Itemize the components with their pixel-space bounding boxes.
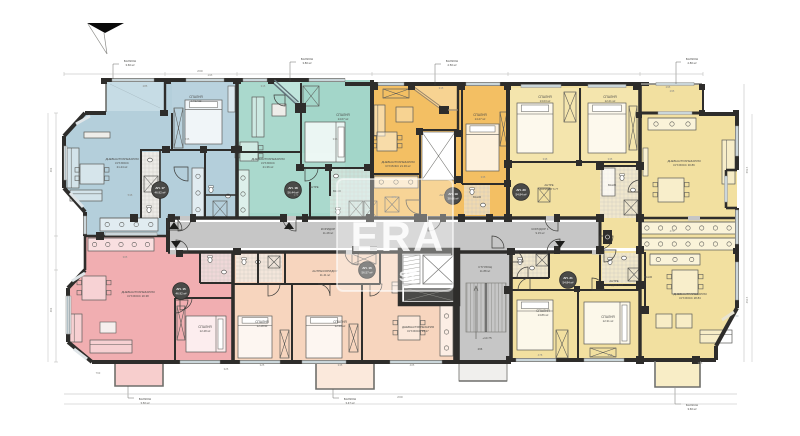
svg-text:54.84 м²: 54.84 м² [516, 193, 527, 197]
svg-text:295: 295 [208, 73, 213, 77]
svg-text:+10.75: +10.75 [482, 336, 492, 340]
svg-text:338: 338 [543, 157, 548, 161]
svg-text:14.27 м²: 14.27 м² [475, 117, 486, 121]
svg-text:2.50 м²: 2.50 м² [447, 63, 456, 67]
svg-text:295: 295 [670, 89, 675, 93]
svg-text:653.5: 653.5 [745, 166, 749, 173]
svg-text:БАНЯ: БАНЯ [644, 275, 652, 279]
svg-text:21.44 м²: 21.44 м² [117, 165, 128, 169]
svg-text:335: 335 [333, 137, 338, 141]
svg-text:ERA: ERA [351, 213, 446, 260]
svg-text:46.92 м²: 46.92 м² [176, 292, 187, 296]
svg-text:305: 305 [123, 255, 128, 259]
svg-text:АНТРЕ: АНТРЕ [609, 279, 618, 283]
svg-text:470: 470 [670, 229, 675, 233]
svg-text:АП. 17: АП. 17 [155, 186, 165, 190]
svg-text:385: 385 [698, 361, 703, 365]
svg-text:325: 325 [260, 363, 265, 367]
svg-text:12.48 м²: 12.48 м² [200, 329, 211, 333]
svg-text:КУХ.БОКС 20.38: КУХ.БОКС 20.38 [127, 294, 149, 298]
svg-text:2690: 2690 [397, 395, 403, 399]
svg-text:335: 335 [185, 137, 190, 141]
svg-text:13.03 м²: 13.03 м² [540, 99, 551, 103]
svg-text:17.92 м²: 17.92 м² [191, 99, 202, 103]
svg-text:3.60 м²: 3.60 м² [687, 407, 696, 411]
svg-text:325: 325 [224, 367, 229, 371]
svg-text:2.80 м²: 2.80 м² [687, 61, 696, 65]
svg-text:КУХ.БОКС 30.89: КУХ.БОКС 30.89 [673, 163, 695, 167]
svg-text:315: 315 [439, 86, 444, 90]
svg-text:538: 538 [128, 193, 133, 197]
svg-text:АНТРЕ: АНТРЕ [544, 183, 553, 187]
svg-text:КУХ.БОКС 23.17: КУХ.БОКС 23.17 [407, 329, 429, 333]
svg-text:АП. 20: АП. 20 [516, 188, 526, 192]
svg-text:12.28 м²: 12.28 м² [257, 324, 268, 328]
svg-text:11.88 м²: 11.88 м² [480, 269, 490, 273]
svg-text:12.40 м²: 12.40 м² [335, 324, 346, 328]
svg-text:295: 295 [666, 85, 671, 89]
svg-text:12.31 м²: 12.31 м² [603, 319, 614, 323]
svg-text:3.80 м²: 3.80 м² [302, 61, 311, 65]
svg-text:763: 763 [96, 371, 101, 375]
svg-text:463: 463 [49, 167, 53, 172]
svg-text:376: 376 [294, 193, 299, 197]
svg-text:46.92 м²: 46.92 м² [155, 191, 166, 195]
svg-text:АНТРЕ: АНТРЕ [309, 185, 318, 189]
svg-text:54.84 м²: 54.84 м² [563, 281, 574, 285]
svg-text:КУХ.БОКС 28.84: КУХ.БОКС 28.84 [679, 296, 701, 300]
svg-text:405: 405 [410, 363, 415, 367]
svg-text:3.60 м²: 3.60 м² [125, 63, 134, 67]
svg-text:335: 335 [608, 353, 613, 357]
svg-text:335: 335 [481, 175, 486, 179]
svg-text:2690: 2690 [197, 69, 203, 73]
svg-text:11.28 м²: 11.28 м² [323, 231, 333, 235]
svg-text:12.21 м²: 12.21 м² [605, 99, 616, 103]
svg-text:КУХ.БОКС 21.36 м²: КУХ.БОКС 21.36 м² [385, 164, 410, 168]
svg-text:АП. 21: АП. 21 [563, 276, 573, 280]
svg-text:ST: ST [399, 268, 417, 284]
svg-text:АП. 15: АП. 15 [176, 287, 186, 291]
svg-text:21.36 м²: 21.36 м² [263, 165, 274, 169]
svg-text:БАНЯ: БАНЯ [473, 195, 481, 199]
svg-text:285: 285 [143, 84, 148, 88]
svg-text:13.86 м²: 13.86 м² [538, 313, 549, 317]
svg-text:14.07 м²: 14.07 м² [338, 117, 349, 121]
svg-text:463: 463 [49, 307, 53, 312]
svg-text:478: 478 [538, 353, 543, 357]
svg-text:335: 335 [338, 363, 343, 367]
svg-text:335: 335 [608, 157, 613, 161]
svg-text:315: 315 [261, 84, 266, 88]
svg-text:БАНЯ: БАНЯ [608, 183, 616, 187]
svg-text:3.60 м²: 3.60 м² [140, 401, 149, 405]
svg-text:АП. 18: АП. 18 [288, 186, 298, 190]
svg-text:266: 266 [478, 347, 483, 351]
svg-text:9.15 м²: 9.15 м² [535, 231, 544, 235]
svg-text:452.5: 452.5 [745, 296, 749, 303]
svg-text:3.47 м²: 3.47 м² [345, 401, 354, 405]
svg-text:11.41 м²: 11.41 м² [320, 273, 330, 277]
svg-text:КОРИДОР 5.17: КОРИДОР 5.17 [605, 283, 624, 287]
svg-text:КОРИДОР 6.77: КОРИДОР 6.77 [540, 187, 559, 191]
